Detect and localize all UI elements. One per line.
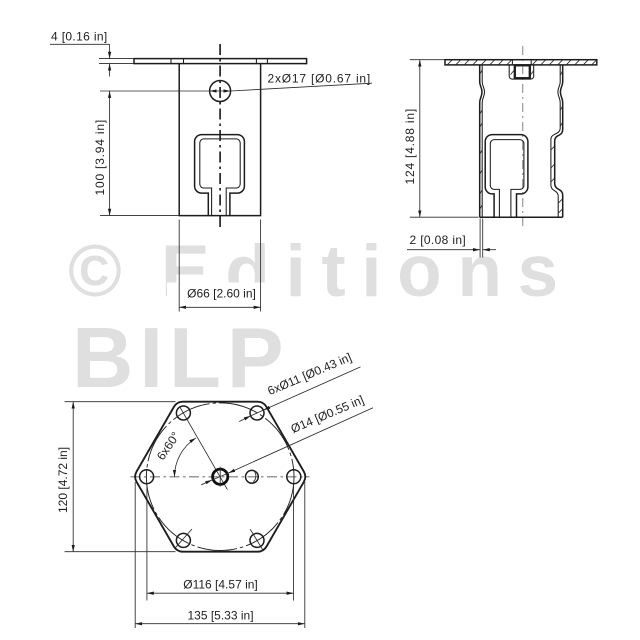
svg-text:100 [3.94 in]: 100 [3.94 in] xyxy=(93,119,107,195)
svg-text:2xØ17 [Ø0.67 in]: 2xØ17 [Ø0.67 in] xyxy=(268,71,372,85)
svg-text:2 [0.08 in]: 2 [0.08 in] xyxy=(410,233,467,247)
svg-text:124 [4.88 in]: 124 [4.88 in] xyxy=(403,108,417,184)
svg-text:Ø66 [2.60 in]: Ø66 [2.60 in] xyxy=(187,286,256,300)
svg-text:©: © xyxy=(68,231,122,312)
svg-text:BILP: BILP xyxy=(72,311,290,406)
svg-text:Ø116 [4.57 in]: Ø116 [4.57 in] xyxy=(183,578,258,592)
svg-text:135 [5.33 in]: 135 [5.33 in] xyxy=(187,609,253,623)
svg-text:120 [4.72 in]: 120 [4.72 in] xyxy=(56,447,70,513)
svg-text:4 [0.16 in]: 4 [0.16 in] xyxy=(51,30,108,44)
